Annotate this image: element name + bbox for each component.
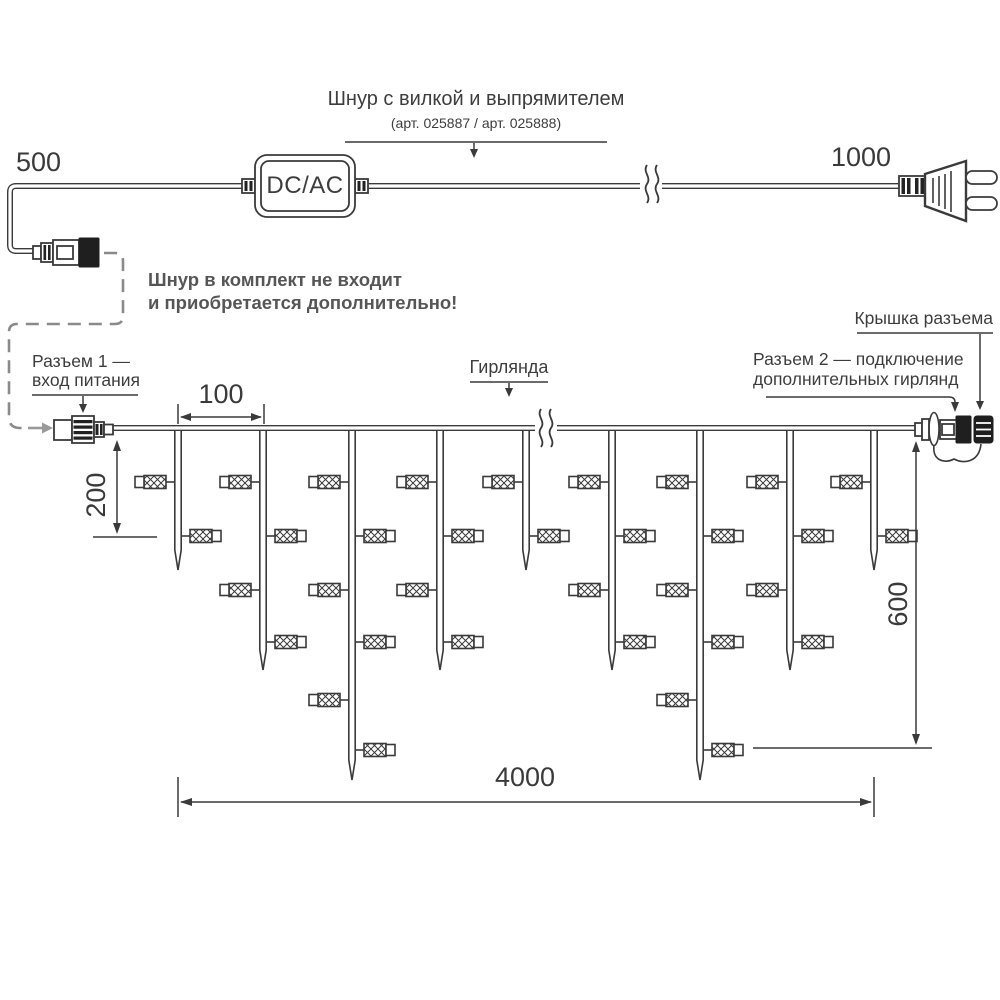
bulb-cap-icon [824,637,833,648]
dim-200-label: 200 [81,462,111,528]
garland-label-leader [470,382,548,397]
led-bulb-icon [364,530,386,543]
bulb-cap-icon [297,637,306,648]
bulb-cap-icon [657,695,666,706]
led-bulb-icon [666,694,688,707]
led-bulb-icon [578,584,600,597]
connector-2-label-line2: дополнительных гирлянд [753,370,955,390]
drop-wire [787,431,793,670]
drop-wire [871,431,877,570]
led-bulb-icon [452,636,474,649]
connector-cap-icon [974,416,993,443]
connector-1-label-line1: Разъем 1 — [32,352,130,372]
led-bulb-icon [666,476,688,489]
led-bulb-icon [840,476,862,489]
led-bulb-icon [492,476,514,489]
led-bulb-icon [190,530,212,543]
bulb-cap-icon [646,637,655,648]
dim-100-label: 100 [187,379,255,409]
led-bulb-icon [406,584,428,597]
bulb-cap-icon [747,585,756,596]
not-included-leader [9,253,123,434]
dim-1000-label: 1000 [831,142,891,172]
led-bulb-icon [624,530,646,543]
drop-wire [349,431,355,780]
bulb-cap-icon [483,477,492,488]
led-bulb-icon [452,530,474,543]
led-bulb-icon [144,476,166,489]
connector-2-label-line1: Разъем 2 — подключение [753,350,955,370]
drop-wire [697,431,703,780]
bulb-cap-icon [657,477,666,488]
cord-title: Шнур с вилкой и выпрямителем [296,88,656,110]
garland-wire [113,409,915,447]
led-bulb-icon [538,530,560,543]
led-bulb-icon [886,530,908,543]
bulb-cap-icon [734,637,743,648]
cord-articles: (арт. 025887 / арт. 025888) [296,116,656,132]
bulb-cap-icon [220,585,229,596]
led-bulb-icon [406,476,428,489]
led-bulb-icon [318,584,340,597]
led-bulb-icon [756,584,778,597]
led-bulb-icon [802,636,824,649]
garland-label: Гирлянда [459,357,559,377]
led-bulb-icon [229,476,251,489]
bulb-cap-icon [569,477,578,488]
bulb-cap-icon [212,531,221,542]
drop-wire [260,431,266,670]
drop-wire [175,431,181,570]
led-bulb-icon [624,636,646,649]
cord-end-connector-icon [33,238,99,267]
diagram-canvas: 500 1000 DC/AC Шнур с вилкой и выпрямите… [0,0,1000,1000]
bulb-cap-icon [386,745,395,756]
bulb-cap-icon [220,477,229,488]
bulb-cap-icon [386,531,395,542]
bulb-cap-icon [386,637,395,648]
led-bulb-icon [756,476,778,489]
bulb-cap-icon [297,531,306,542]
drop-wire [437,431,443,670]
adapter-label: DC/AC [255,173,355,200]
drop-wire [523,431,529,570]
bulb-cap-icon [734,531,743,542]
led-bulb-icon [364,636,386,649]
led-bulb-icon [712,530,734,543]
bulb-cap-icon [824,531,833,542]
bulb-cap-icon [657,585,666,596]
bulb-cap-icon [135,477,144,488]
dim-4000-label: 4000 [460,762,590,792]
led-bulb-icon [712,744,734,757]
bulb-cap-icon [569,585,578,596]
connector-1-leader [32,395,138,413]
note-line-1: Шнур в комплект не входит [148,270,402,291]
bulb-cap-icon [747,477,756,488]
led-bulb-icon [229,584,251,597]
bulb-cap-icon [309,477,318,488]
led-bulb-icon [275,636,297,649]
dim-600-label: 600 [883,571,913,637]
led-bulb-icon [578,476,600,489]
led-bulb-icon [318,694,340,707]
led-bulb-icon [666,584,688,597]
bulb-cap-icon [646,531,655,542]
connector-1-label-line2: вход питания [32,371,140,391]
bulb-cap-icon [309,585,318,596]
cord-label-leader [345,142,607,158]
led-bulb-icon [802,530,824,543]
power-plug-icon [899,161,997,221]
bulb-cap-icon [474,531,483,542]
led-bulb-icon [318,476,340,489]
cap-label: Крышка разъема [848,309,993,329]
bulb-cap-icon [560,531,569,542]
bulb-cap-icon [397,477,406,488]
bulb-cap-icon [397,585,406,596]
bulb-cap-icon [474,637,483,648]
connector-1-icon [54,416,113,443]
connector-2-icon [915,413,993,462]
power-cord-wire [10,165,899,251]
led-bulb-icon [275,530,297,543]
bulb-cap-icon [734,745,743,756]
led-bulb-icon [712,636,734,649]
drops-layer [135,431,917,780]
led-bulb-icon [364,744,386,757]
connector-2-leader [766,397,959,412]
bulb-cap-icon [309,695,318,706]
note-line-2: и приобретается дополнительно! [148,293,457,314]
drop-wire [609,431,615,670]
dim-500-label: 500 [16,147,61,177]
bulb-cap-icon [831,477,840,488]
